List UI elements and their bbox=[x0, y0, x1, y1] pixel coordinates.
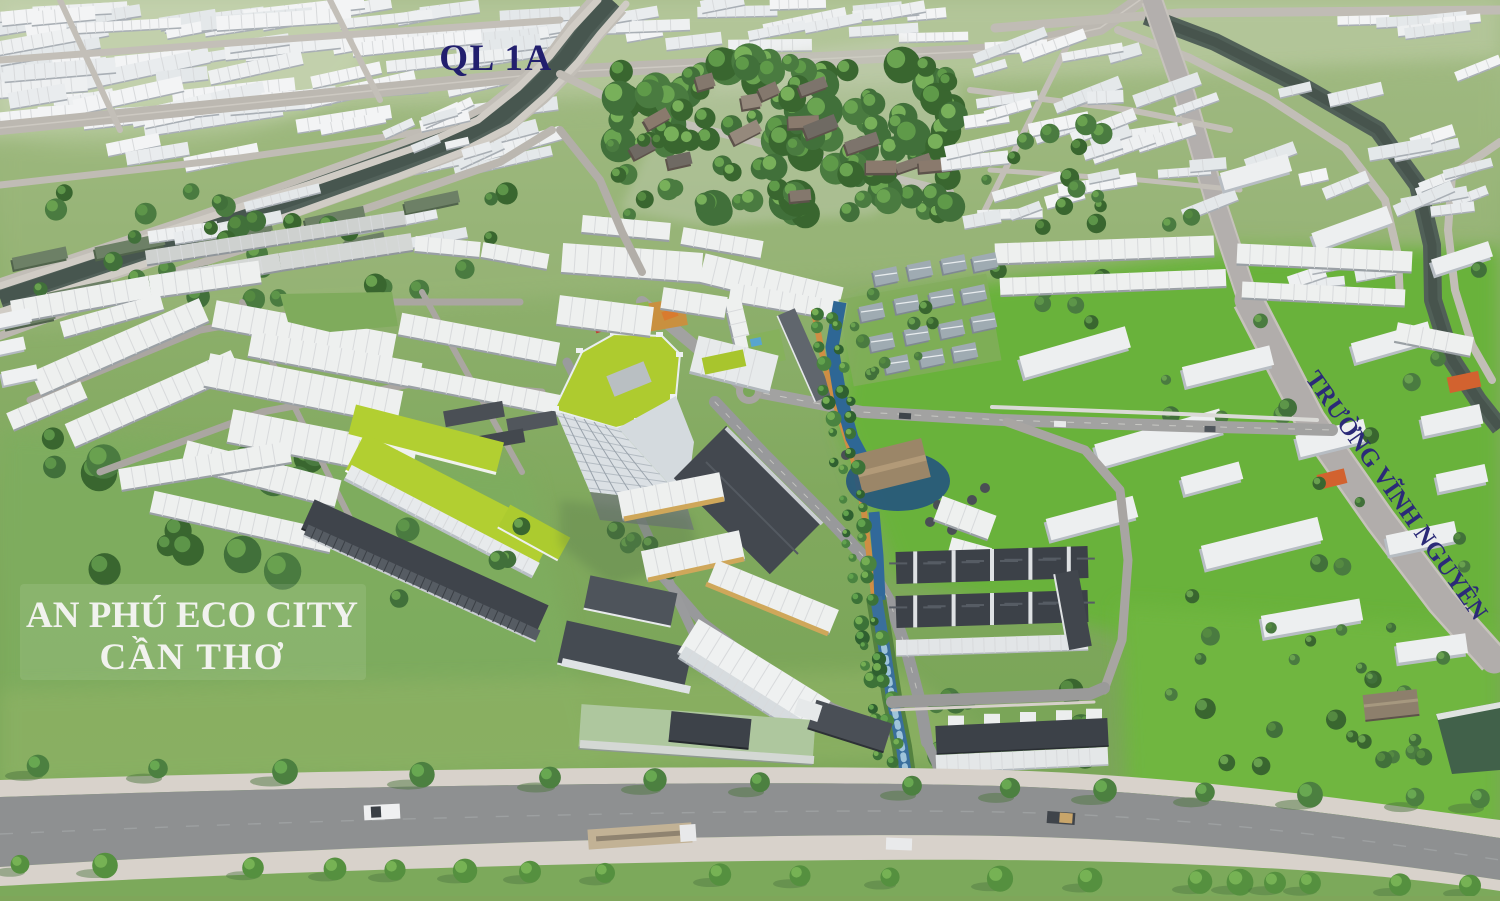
svg-text:CẦN THƠ: CẦN THƠ bbox=[100, 635, 285, 678]
svg-text:AN PHÚ ECO CITY: AN PHÚ ECO CITY bbox=[26, 594, 358, 636]
svg-text:QL 1A: QL 1A bbox=[439, 38, 552, 79]
